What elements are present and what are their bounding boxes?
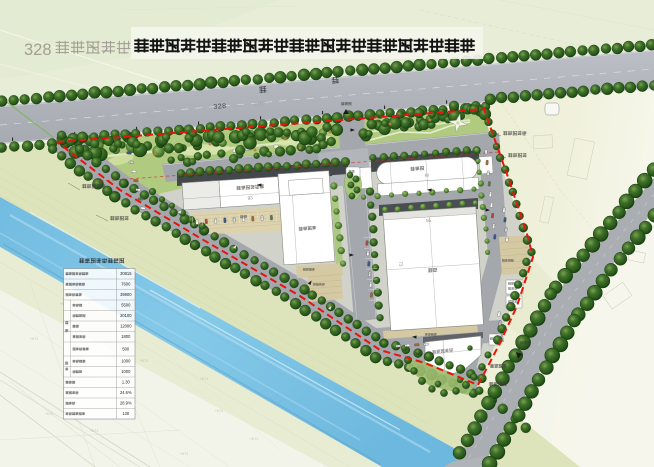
svg-text:12000: 12000	[120, 324, 132, 329]
svg-text:+5.71: +5.71	[30, 337, 38, 341]
svg-text:+5.71: +5.71	[250, 437, 258, 441]
svg-text:+5.71: +5.71	[90, 429, 98, 433]
svg-text:+5.71: +5.71	[45, 412, 53, 416]
svg-text:28.9%: 28.9%	[120, 401, 132, 406]
svg-text:5500: 5500	[121, 303, 131, 308]
svg-text:30815: 30815	[120, 271, 132, 276]
svg-text:93: 93	[247, 195, 253, 200]
svg-text:270: 270	[254, 101, 263, 108]
svg-text:20100: 20100	[120, 313, 132, 318]
svg-text:+5.71: +5.71	[200, 377, 208, 381]
svg-text:130: 130	[122, 411, 130, 416]
svg-text:7600: 7600	[121, 282, 131, 287]
svg-text:1.30: 1.30	[122, 380, 131, 385]
svg-text:39900: 39900	[120, 292, 132, 297]
svg-text:73: 73	[398, 261, 403, 267]
svg-text:1000: 1000	[121, 359, 131, 364]
svg-text:328: 328	[24, 41, 52, 59]
svg-text:+5.71: +5.71	[140, 359, 148, 363]
svg-text:+5.71: +5.71	[180, 452, 188, 456]
svg-text:+5.71: +5.71	[215, 409, 223, 413]
svg-text:24.6%: 24.6%	[120, 390, 132, 395]
svg-text:1000: 1000	[121, 369, 131, 374]
svg-text:55: 55	[426, 218, 432, 223]
svg-text:328: 328	[213, 103, 227, 111]
svg-text:500: 500	[122, 346, 130, 351]
svg-text:1800: 1800	[121, 334, 131, 339]
